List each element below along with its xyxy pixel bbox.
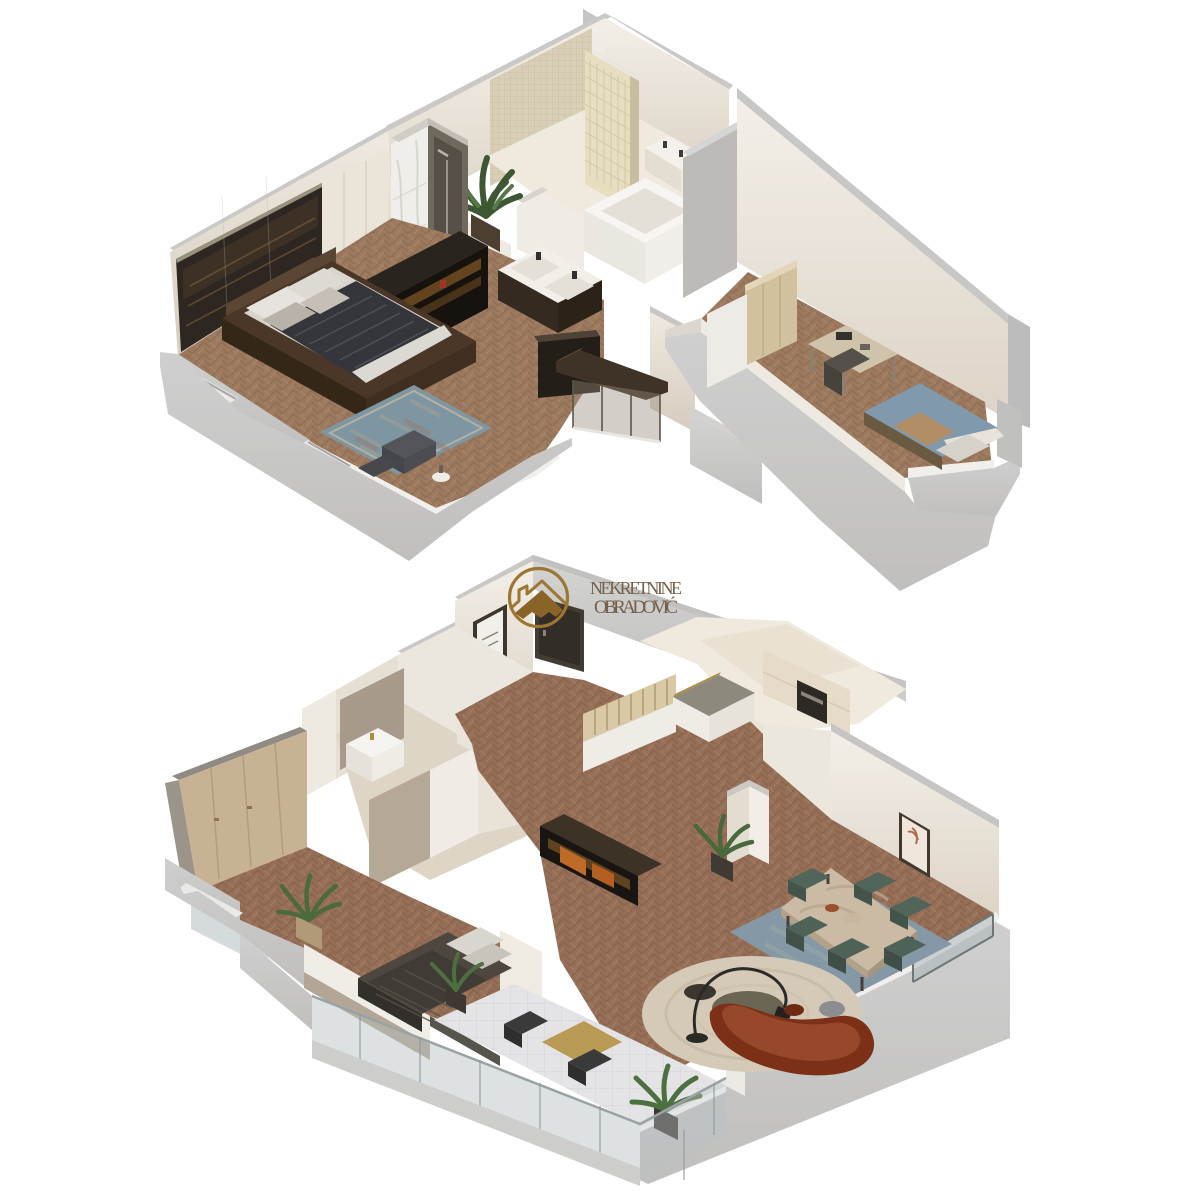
svg-text:NEKRETNINE: NEKRETNINE — [590, 578, 682, 598]
svg-text:OBRADOVIĆ: OBRADOVIĆ — [594, 596, 678, 618]
